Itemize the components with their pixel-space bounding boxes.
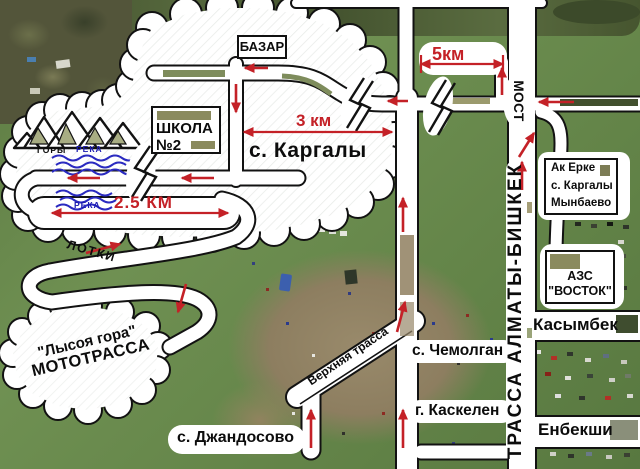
kasymbek-label: Касымбек: [533, 316, 618, 334]
school-label: ШКОЛА №2: [151, 106, 221, 154]
distance-3km-label: 3 км: [296, 112, 331, 130]
kargaly-label: с. Каргалы: [249, 140, 367, 162]
distance-5km-label: 5км: [432, 45, 464, 64]
azs-text-line1: АЗС: [547, 270, 613, 283]
kaskelen-label: г. Каскелен: [415, 403, 499, 419]
chemolgan-label: с. Чемолган: [412, 343, 503, 359]
bridge-label: МОСТ: [511, 73, 525, 129]
river-label-lower: РЕКА: [74, 201, 101, 210]
akerke-sign: Ак Ерке с. Каргалы Мынбаево: [544, 158, 618, 215]
photo-strip: [157, 111, 211, 120]
azs-text-line2: "ВОСТОК": [547, 285, 613, 298]
map-overlay: [0, 0, 640, 469]
akerke-text-line3: Мынбаево: [551, 195, 616, 213]
mountains-label: ГОРЫ: [37, 146, 66, 155]
bazar-label: БАЗАР: [237, 35, 287, 59]
aerial-map: БАЗАР ШКОЛА №2 с. Каргалы 3 км 5км 2.5 К…: [0, 0, 640, 469]
distance-25km-label: 2.5 КМ: [114, 194, 173, 212]
photo-strip: [550, 254, 580, 269]
river-label-upper: РЕКА: [76, 145, 103, 154]
dzhandosovo-label: с. Джандосово: [177, 430, 294, 447]
azs-vostok-sign: АЗС "ВОСТОК": [545, 250, 615, 304]
photo-strip: [191, 141, 215, 149]
bazar-text: БАЗАР: [240, 39, 284, 54]
school-text-line1: ШКОЛА: [156, 121, 213, 137]
akerke-text-line2: с. Каргалы: [551, 178, 616, 196]
enbekshi-label: Енбекши: [538, 421, 613, 439]
highway-label: ТРАССА АЛМАТЫ-БИШКЕК: [506, 161, 526, 461]
photo-strip: [600, 165, 610, 176]
school-text-line2: №2: [156, 138, 181, 154]
